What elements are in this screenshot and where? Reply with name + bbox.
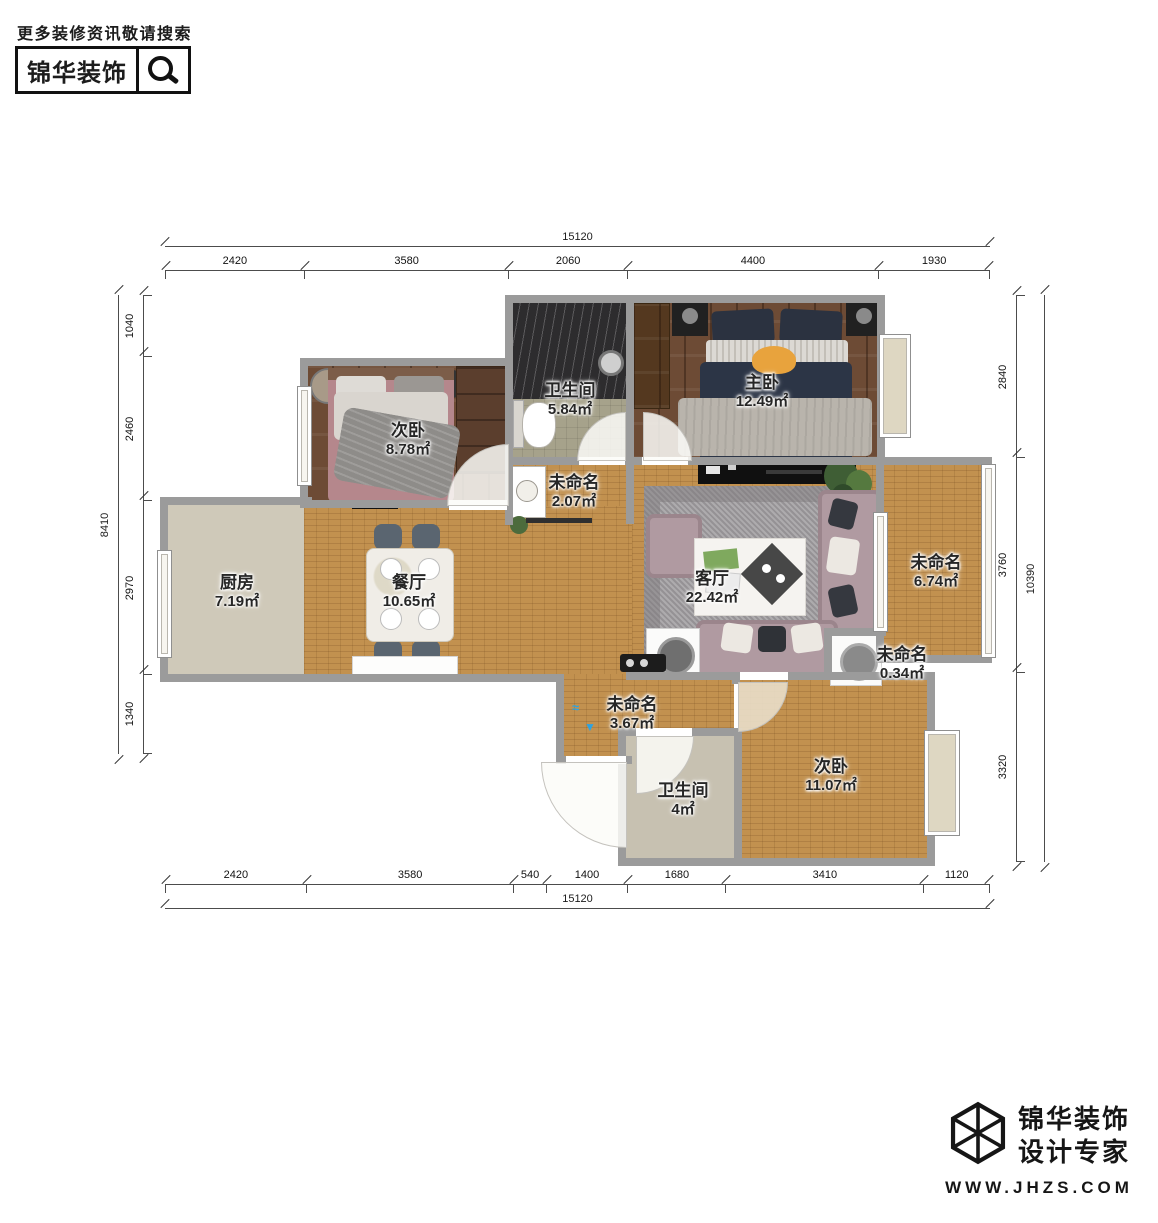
wall: [626, 672, 740, 680]
dimension-value: 3320: [997, 755, 1009, 779]
dimension-segment: 2970: [143, 500, 152, 674]
entrance-arrow-icon: ▼: [584, 720, 596, 734]
dimension-top-segments: 24203580206044001930: [165, 270, 990, 279]
header-tagline: 更多装修资讯敬请搜索: [17, 20, 192, 44]
entry-door-arc: [541, 762, 627, 848]
dimension-value: 3760: [997, 553, 1009, 577]
shower-head-icon: [598, 350, 624, 376]
dimension-segment: 2840: [1016, 295, 1025, 457]
master-bed-accent: [752, 346, 796, 374]
master-bay-window: [879, 334, 911, 438]
dimension-value: 2970: [124, 576, 136, 600]
dimension-value: 4400: [741, 255, 765, 267]
dimension-segment: 1930: [878, 270, 990, 279]
dimension-segment: 3760: [1016, 457, 1025, 671]
wall: [734, 728, 742, 866]
dimension-value: 1680: [665, 869, 689, 881]
room-label-living: 客厅22.42㎡: [686, 568, 739, 608]
dining-chair: [412, 524, 440, 550]
dimension-segment: 540: [513, 884, 545, 893]
wall: [876, 457, 992, 465]
room-label-unnamed-nook: 未命名0.34㎡: [877, 644, 928, 684]
dimension-value: 2420: [223, 255, 247, 267]
dimension-value: 2460: [124, 417, 136, 441]
room-label-bedroom-2: 次卧8.78㎡: [386, 420, 430, 460]
header-brand-box: 锦华装饰: [15, 46, 191, 94]
wall: [160, 674, 564, 682]
dimension-segment: 3580: [304, 270, 509, 279]
dimension-segment: 3580: [306, 884, 514, 893]
dimension-segment: 1120: [923, 884, 990, 893]
room-label-unnamed-balcony: 未命名6.74㎡: [911, 552, 962, 592]
dimension-segment: 2420: [165, 884, 306, 893]
dimension-left-total: 8410: [118, 295, 125, 754]
footer-brand-line2: 设计专家: [1018, 1136, 1130, 1169]
dining-chair: [374, 524, 402, 550]
master-wardrobe: [632, 303, 670, 409]
soundbar: [766, 470, 822, 474]
dimension-bottom-segments: 242035805401400168034101120: [165, 884, 990, 893]
dining-hall-floor: [304, 506, 634, 676]
dimension-value: 3580: [398, 869, 422, 881]
sofa-pillow-white: [826, 536, 861, 576]
wall: [160, 497, 312, 505]
header-search-cell: [136, 49, 188, 91]
dimension-value: 1040: [124, 314, 136, 338]
dimension-segment: 2060: [508, 270, 626, 279]
room-label-unnamed-2: 未命名2.07㎡: [549, 472, 600, 512]
room-label-dining: 餐厅10.65㎡: [383, 572, 436, 612]
footer-brand-line1: 锦华装饰: [1018, 1103, 1130, 1136]
dimension-value: 1120: [945, 869, 969, 881]
floorplan-page: 更多装修资讯敬请搜索 锦华装饰: [0, 0, 1158, 1223]
dimension-value: 540: [521, 869, 539, 881]
wall: [824, 628, 832, 680]
dimension-segment: 2460: [143, 356, 152, 500]
dimension-bottom-total: 15120: [165, 908, 990, 915]
room-label-kitchen: 厨房7.19㎡: [215, 572, 259, 612]
footer-brand-text: 锦华装饰 设计专家: [1018, 1103, 1130, 1168]
search-icon: [148, 56, 173, 81]
dimension-value: 2840: [997, 364, 1009, 388]
room-label-master-bedroom: 主卧12.49㎡: [736, 372, 789, 412]
living-balcony-door-window: [873, 512, 888, 632]
dimension-value: 1400: [575, 869, 599, 881]
room-label-bedroom-3: 次卧11.07㎡: [805, 756, 857, 796]
dimension-top-total: 15120: [165, 246, 990, 253]
dimension-segment: 3410: [725, 884, 923, 893]
bedroom2-window: [297, 386, 312, 486]
dimension-segment: 3320: [1016, 672, 1025, 862]
lamp-icon-right: [856, 308, 872, 324]
wall: [505, 295, 885, 303]
dimension-left-segments: 1040246029701340: [143, 295, 152, 754]
kitchen-window: [157, 550, 172, 658]
dimension-value: 3580: [394, 255, 418, 267]
dimension-right-segments: 284037603320: [1016, 295, 1025, 862]
dimension-segment: 1400: [546, 884, 628, 893]
wall: [626, 295, 634, 524]
dimension-value: 3410: [813, 869, 837, 881]
sink-basin: [516, 480, 538, 502]
wall: [556, 674, 564, 764]
cube-logo-icon: [948, 1100, 1008, 1171]
counter-line: [526, 518, 592, 523]
dimension-value: 2420: [224, 869, 248, 881]
stove-burner: [626, 659, 634, 667]
dimension-segment: 2420: [165, 270, 304, 279]
header-brand-name: 锦华装饰: [18, 49, 136, 91]
dimension-value: 2060: [556, 255, 580, 267]
dimension-value: 1930: [922, 255, 946, 267]
footer-website: WWW.JHZS.COM: [925, 1178, 1153, 1198]
tray-cup: [762, 564, 771, 573]
dimension-segment: 1340: [143, 674, 152, 754]
wall: [618, 858, 744, 866]
bedroom3-bay-window: [924, 730, 960, 836]
stove-burner2: [640, 659, 648, 667]
room-label-bathroom-2: 卫生间4㎡: [658, 780, 709, 820]
room-label-entry-hall: 未命名3.67㎡: [607, 694, 658, 734]
door-opening: [740, 672, 788, 680]
entrance-squiggle-icon: ≈: [572, 700, 579, 715]
sofa-pillow-dark3: [758, 626, 786, 652]
room-label-bathroom-1: 卫生间5.84㎡: [545, 380, 596, 420]
sofa-pillow-white3: [790, 622, 824, 654]
lamp-icon-left: [682, 308, 698, 324]
tv-detail: [706, 466, 720, 474]
sofa-pillow-white2: [720, 622, 754, 654]
dimension-right-total: 10390: [1044, 295, 1051, 862]
balcony-window: [981, 464, 996, 658]
tray-cup: [776, 574, 785, 583]
wall: [736, 858, 935, 866]
wall: [300, 358, 513, 366]
footer-brand-block: 锦华装饰 设计专家 WWW.JHZS.COM: [925, 1100, 1153, 1198]
dimension-segment: 1680: [627, 884, 725, 893]
dimension-value: 1340: [124, 702, 136, 726]
dimension-segment: 4400: [627, 270, 878, 279]
